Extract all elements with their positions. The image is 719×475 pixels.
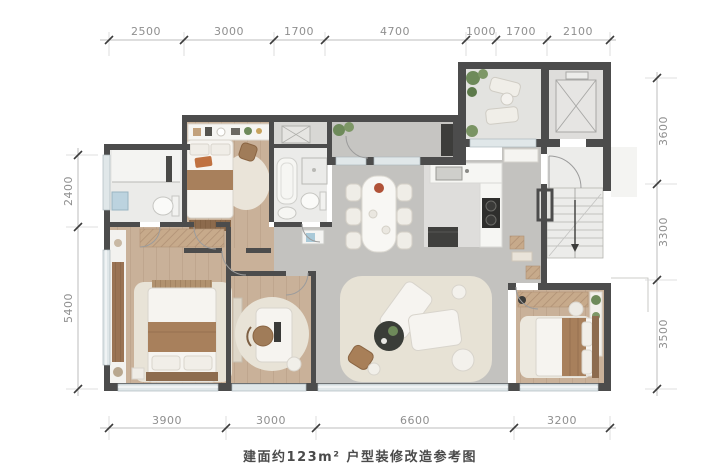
side-table	[501, 93, 513, 105]
common-areas	[547, 147, 637, 258]
dim-label: 3500	[657, 319, 670, 349]
dim-label: 3900	[152, 414, 182, 427]
laundry-unit	[302, 230, 324, 244]
pillow	[211, 144, 230, 155]
window	[103, 155, 110, 210]
shelf-decor	[217, 128, 225, 136]
plate	[369, 210, 377, 218]
plant-icon	[244, 127, 252, 135]
sink-icon	[278, 207, 296, 219]
toilet-icon	[301, 193, 319, 209]
pillow	[190, 144, 209, 155]
shelf-decor	[193, 128, 201, 136]
shelf-decor	[231, 128, 240, 135]
plant-icon	[467, 87, 477, 97]
cabinet	[510, 236, 524, 249]
bathtub-icon	[277, 158, 297, 204]
dining-chair	[346, 208, 361, 225]
dim-label: 1700	[506, 25, 536, 38]
headboard	[146, 372, 218, 381]
plant-icon	[388, 326, 398, 336]
monitor-icon	[274, 322, 281, 342]
dimension-top: 2500 3000 1700 4700 1000 1700 2100	[100, 25, 616, 56]
window	[374, 157, 420, 165]
plant-icon	[466, 125, 478, 137]
dim-label: 3200	[547, 414, 577, 427]
headboard	[592, 316, 599, 378]
dining-chair	[397, 232, 412, 249]
dim-label: 6600	[400, 414, 430, 427]
neighbor-outline	[611, 278, 648, 312]
desk-chair	[253, 326, 273, 346]
duct-shaft	[282, 126, 310, 143]
footstool	[368, 363, 380, 375]
centerpiece	[374, 183, 384, 193]
dim-label: 3000	[256, 414, 286, 427]
toilet-icon	[153, 197, 173, 215]
cabinet	[526, 266, 540, 279]
plant-icon	[478, 69, 488, 79]
side-table	[452, 285, 466, 299]
dim-label: 3000	[214, 25, 244, 38]
toilet-tank	[320, 192, 326, 210]
dining-area	[346, 176, 412, 252]
elevator	[556, 72, 596, 132]
dim-label: 2400	[62, 176, 75, 206]
plant-icon	[466, 71, 480, 85]
dining-chair	[397, 184, 412, 201]
dim-label: 5400	[62, 293, 75, 323]
console	[512, 252, 532, 261]
dim-label: 1000	[466, 25, 496, 38]
sink-icon	[112, 192, 128, 210]
dining-chair	[397, 208, 412, 225]
dim-label: 2500	[131, 25, 161, 38]
stool	[287, 357, 301, 371]
plant-icon	[333, 124, 345, 136]
shower-screen	[166, 156, 172, 182]
window	[336, 157, 366, 165]
lounge-chair	[485, 106, 518, 124]
dim-label: 1700	[284, 25, 314, 38]
pillow	[152, 356, 180, 370]
floor-plan-page: 2500 3000 1700 4700 1000 1700 2100 3900 …	[0, 0, 719, 475]
ottoman	[452, 349, 474, 371]
dim-label: 3300	[657, 217, 670, 247]
terrace-door-glass	[470, 139, 536, 147]
plate	[382, 226, 390, 234]
dim-label: 2100	[563, 25, 593, 38]
island-cabinet	[428, 227, 458, 247]
dining-chair	[346, 232, 361, 249]
wardrobe	[140, 229, 224, 247]
side-table	[569, 302, 583, 316]
plan-caption: 建面约123m² 户型装修改造参考图	[243, 449, 477, 465]
shelf-decor	[205, 127, 212, 136]
decor	[114, 239, 122, 247]
entry-cabinet	[504, 149, 538, 162]
pillow	[184, 356, 212, 370]
blanket	[187, 170, 233, 190]
coffee-table	[374, 321, 404, 351]
pillow	[582, 322, 592, 346]
kitchen-sink	[436, 167, 462, 180]
dimension-bottom: 3900 3000 6600 3200	[100, 414, 616, 440]
sofa-module	[408, 309, 463, 352]
dimension-left: 2400 5400	[62, 148, 98, 396]
floor-plan-drawing: 2500 3000 1700 4700 1000 1700 2100 3900 …	[0, 0, 719, 475]
window	[232, 384, 306, 391]
dim-label: 4700	[380, 25, 410, 38]
pillow	[582, 350, 592, 374]
blanket	[148, 322, 216, 352]
living-room	[340, 276, 492, 382]
dining-chair	[346, 184, 361, 201]
plant-icon	[344, 122, 354, 132]
nightstand	[132, 368, 144, 379]
plant-icon	[591, 295, 601, 305]
dimension-right: 3600 3300 3500	[645, 72, 677, 396]
dim-label: 3600	[657, 116, 670, 146]
decor	[113, 367, 123, 377]
shelf-decor	[256, 128, 262, 134]
ac-unit	[441, 124, 453, 156]
